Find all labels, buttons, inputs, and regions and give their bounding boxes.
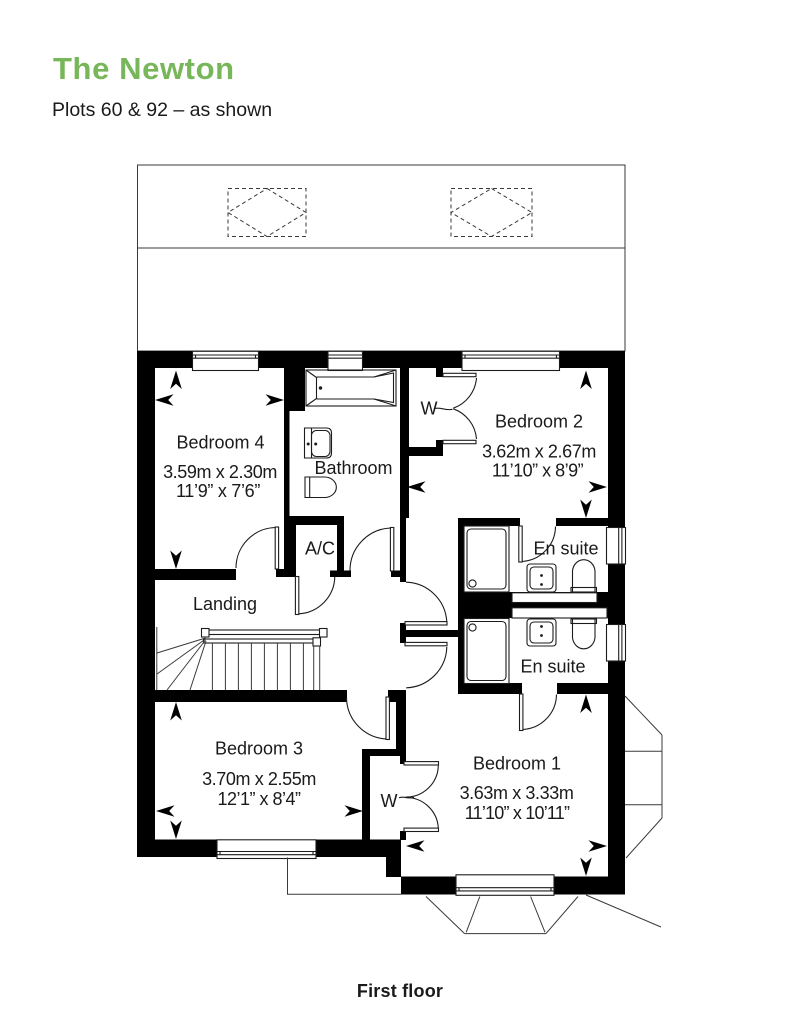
svg-text:12’1” x 8’4”: 12’1” x 8’4”	[217, 789, 301, 809]
svg-text:11’10” x 8’9”: 11’10” x 8’9”	[492, 461, 584, 481]
svg-text:Bedroom 2: Bedroom 2	[495, 412, 583, 432]
svg-text:11’9” x 7’6”: 11’9” x 7’6”	[176, 481, 260, 501]
svg-text:The Newton: The Newton	[53, 51, 235, 86]
svg-text:Bathroom: Bathroom	[314, 458, 392, 478]
svg-text:Plots 60 & 92 – as shown: Plots 60 & 92 – as shown	[52, 99, 272, 121]
svg-text:3.62m x 2.67m: 3.62m x 2.67m	[482, 442, 596, 462]
svg-text:En suite: En suite	[533, 539, 598, 559]
svg-text:First floor: First floor	[357, 981, 443, 1001]
svg-text:W: W	[421, 399, 438, 419]
svg-text:3.63m x 3.33m: 3.63m x 3.33m	[460, 783, 574, 803]
svg-text:Bedroom 1: Bedroom 1	[473, 754, 561, 774]
svg-text:Bedroom 4: Bedroom 4	[176, 433, 264, 453]
svg-text:Bedroom 3: Bedroom 3	[215, 739, 303, 759]
svg-text:11’10” x 10’11”: 11’10” x 10’11”	[465, 803, 570, 823]
svg-text:Landing: Landing	[193, 594, 257, 614]
svg-text:En suite: En suite	[520, 657, 585, 677]
svg-text:W: W	[381, 791, 398, 811]
svg-text:3.59m x 2.30m: 3.59m x 2.30m	[163, 462, 277, 482]
svg-text:A/C: A/C	[305, 539, 335, 559]
svg-text:3.70m x 2.55m: 3.70m x 2.55m	[202, 769, 316, 789]
